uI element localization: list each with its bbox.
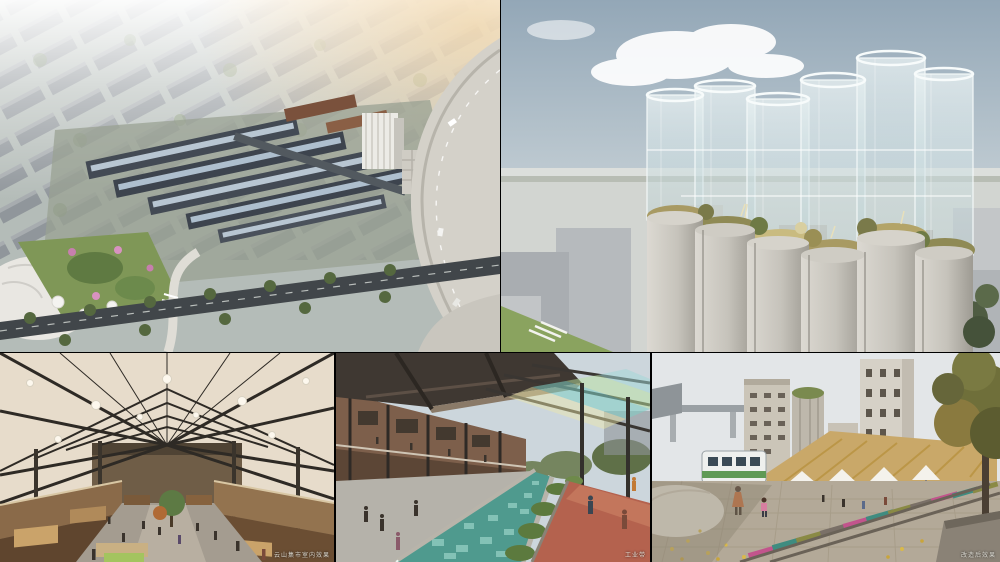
caption-canal: 工业带 bbox=[625, 553, 646, 559]
silo-building-white bbox=[362, 113, 404, 169]
panel-railway-plaza: 改造后效果 bbox=[652, 353, 1000, 562]
pine-tree bbox=[963, 316, 995, 348]
panel-silo-towers bbox=[501, 0, 1000, 352]
canal-illustration bbox=[336, 353, 650, 562]
caption-market: 云山集市室内效果 bbox=[274, 553, 330, 559]
panel-market-hall-interior: 云山集市室内效果 bbox=[0, 353, 334, 562]
silo-cluster bbox=[647, 51, 975, 352]
panel-canal-promenade: 工业带 bbox=[336, 353, 650, 562]
panel-masterplan-aerial bbox=[0, 0, 500, 352]
silos-illustration bbox=[501, 0, 1000, 352]
render-collage: 云山集市室内效果 bbox=[0, 0, 1000, 562]
caption-plaza: 改造后效果 bbox=[961, 553, 996, 559]
market-illustration bbox=[0, 353, 334, 562]
plaza-illustration bbox=[652, 353, 1000, 562]
masterplan-illustration bbox=[0, 0, 500, 352]
